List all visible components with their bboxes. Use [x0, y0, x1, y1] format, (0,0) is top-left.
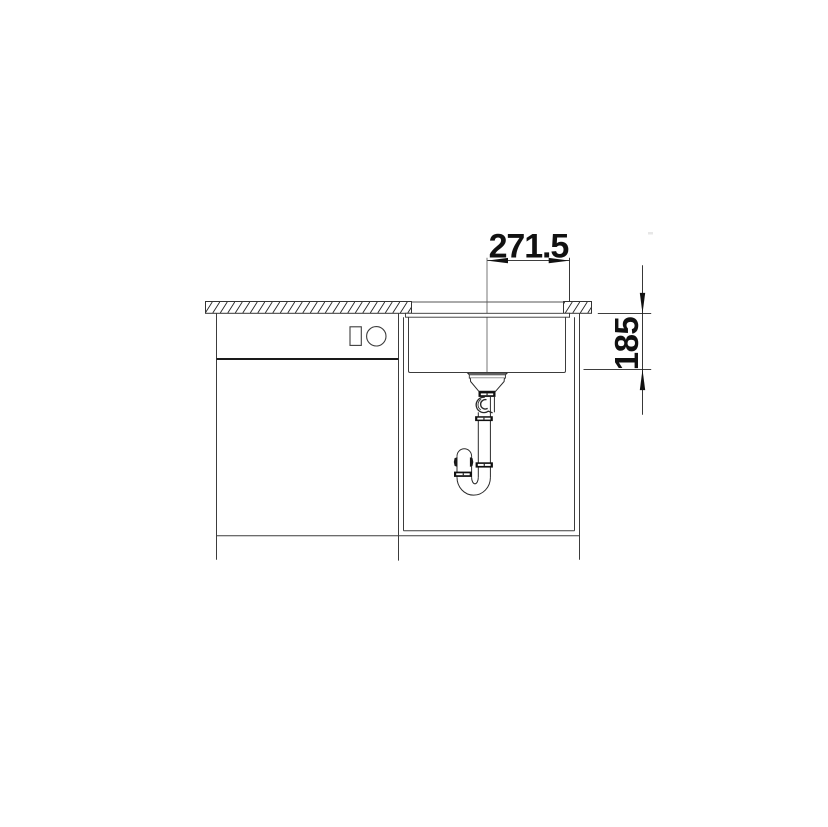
svg-text:185: 185 — [608, 317, 645, 371]
